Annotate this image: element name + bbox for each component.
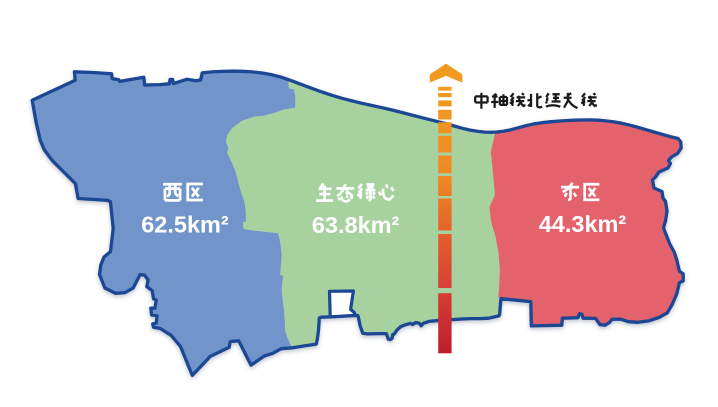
svg-text:63.8km²: 63.8km² (312, 212, 400, 238)
svg-text:62.5km²: 62.5km² (141, 212, 229, 238)
svg-text:44.3km²: 44.3km² (539, 211, 627, 237)
